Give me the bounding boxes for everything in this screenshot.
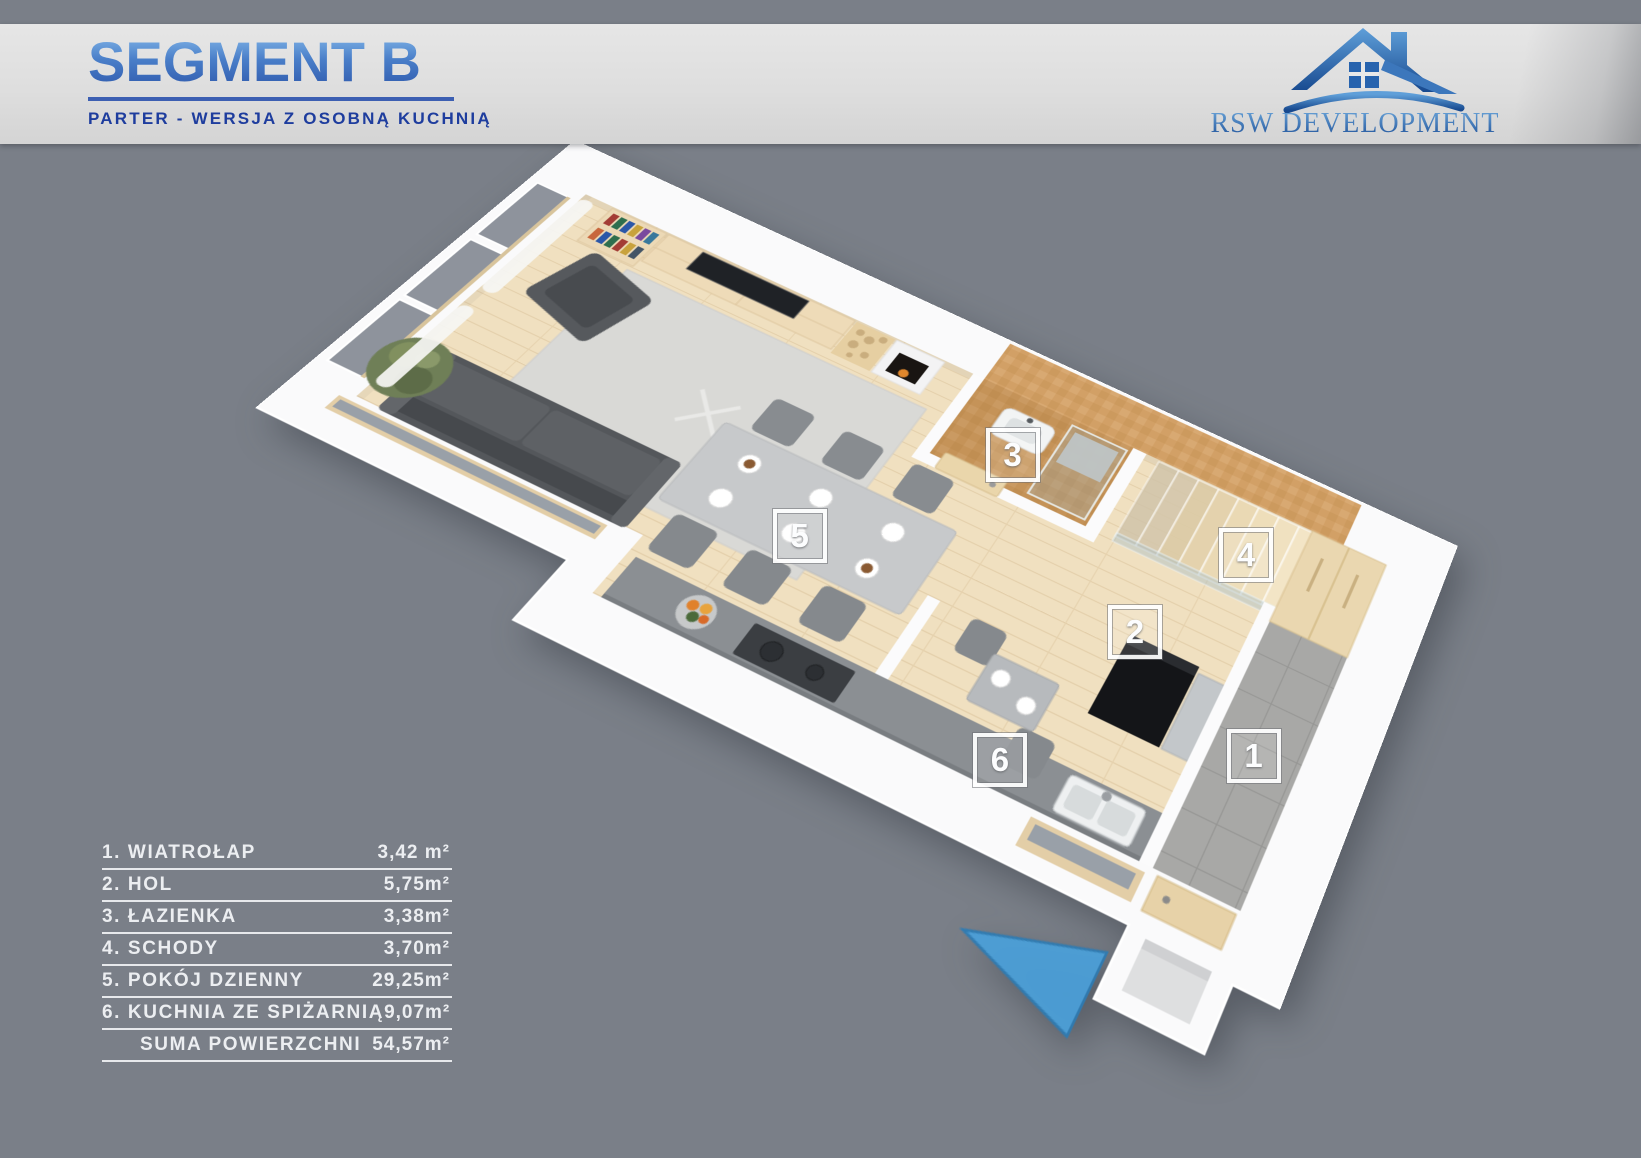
legend-row: 3. ŁAZIENKA3,38m² bbox=[102, 906, 452, 934]
legend-room-label: 3. ŁAZIENKA bbox=[102, 906, 237, 928]
legend-room-label: 5. POKÓJ DZIENNY bbox=[102, 970, 304, 992]
legend-row: 5. POKÓJ DZIENNY29,25m² bbox=[102, 970, 452, 998]
legend-room-area: 5,75m² bbox=[384, 874, 450, 896]
page-subtitle: PARTER - WERSJA Z OSOBNĄ KUCHNIĄ bbox=[88, 109, 492, 129]
page-title: SEGMENT B bbox=[88, 32, 492, 92]
entrance-arrow-icon bbox=[939, 891, 1106, 1036]
legend-room-area: 3,38m² bbox=[384, 906, 450, 928]
legend-room-area: 3,42 m² bbox=[378, 842, 450, 864]
title-underline bbox=[88, 97, 454, 101]
legend-row: 4. SCHODY3,70m² bbox=[102, 938, 452, 966]
legend-row: 2. HOL5,75m² bbox=[102, 874, 452, 902]
room-marker-5: 5 bbox=[773, 509, 827, 563]
room-marker-3: 3 bbox=[986, 428, 1040, 482]
plan-sheet: SEGMENT B PARTER - WERSJA Z OSOBNĄ KUCHN… bbox=[0, 0, 1641, 1158]
legend-row: 1. WIATROŁAP3,42 m² bbox=[102, 842, 452, 870]
legend-room-label: 6. KUCHNIA ZE SPIŻARNIĄ bbox=[102, 1002, 384, 1024]
legend-room-area: 29,25m² bbox=[372, 970, 450, 992]
legend-room-label: SUMA POWIERZCHNI bbox=[102, 1034, 361, 1056]
legend-row-total: SUMA POWIERZCHNI54,57m² bbox=[102, 1034, 452, 1062]
room-marker-6: 6 bbox=[973, 733, 1027, 787]
legend-room-label: 2. HOL bbox=[102, 874, 173, 896]
room-marker-2: 2 bbox=[1108, 605, 1162, 659]
legend: 1. WIATROŁAP3,42 m²2. HOL5,75m²3. ŁAZIEN… bbox=[102, 842, 452, 1066]
legend-room-label: 1. WIATROŁAP bbox=[102, 842, 256, 864]
title-block: SEGMENT B PARTER - WERSJA Z OSOBNĄ KUCHN… bbox=[88, 32, 492, 129]
legend-row: 6. KUCHNIA ZE SPIŻARNIĄ9,07m² bbox=[102, 1002, 452, 1030]
legend-room-label: 4. SCHODY bbox=[102, 938, 219, 960]
legend-room-area: 3,70m² bbox=[384, 938, 450, 960]
logo-text: RSW DEVELOPMENT bbox=[1210, 108, 1499, 138]
room-marker-1: 1 bbox=[1227, 729, 1281, 783]
logo-house-icon: RSW DEVELOPMENT bbox=[1195, 20, 1513, 138]
room-marker-4: 4 bbox=[1219, 528, 1273, 582]
company-logo: RSW DEVELOPMENT bbox=[1195, 20, 1513, 138]
legend-room-area: 9,07m² bbox=[384, 1002, 450, 1024]
legend-room-area: 54,57m² bbox=[372, 1034, 450, 1056]
